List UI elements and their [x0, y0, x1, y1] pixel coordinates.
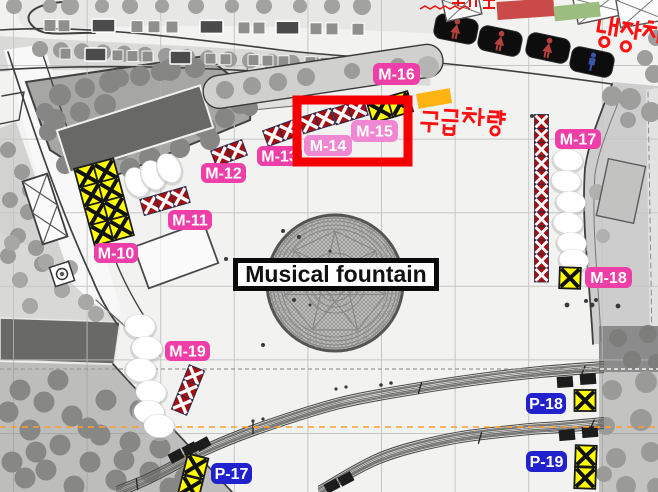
svg-text:M-13: M-13 [261, 149, 298, 166]
svg-text:P-17: P-17 [215, 466, 249, 483]
svg-text:P-18: P-18 [529, 396, 563, 413]
svg-text:M-19: M-19 [169, 344, 206, 361]
svg-text:M-14: M-14 [310, 138, 347, 155]
svg-text:M-18: M-18 [590, 270, 627, 287]
svg-text:P-19: P-19 [530, 454, 564, 471]
svg-text:M-11: M-11 [172, 213, 208, 230]
svg-text:M-10: M-10 [98, 246, 135, 263]
svg-text:M-16: M-16 [378, 67, 415, 84]
svg-text:Musical fountain: Musical fountain [245, 261, 426, 287]
svg-text:M-17: M-17 [560, 132, 597, 149]
svg-text:M-15: M-15 [356, 124, 393, 141]
svg-text:M-12: M-12 [205, 166, 242, 183]
